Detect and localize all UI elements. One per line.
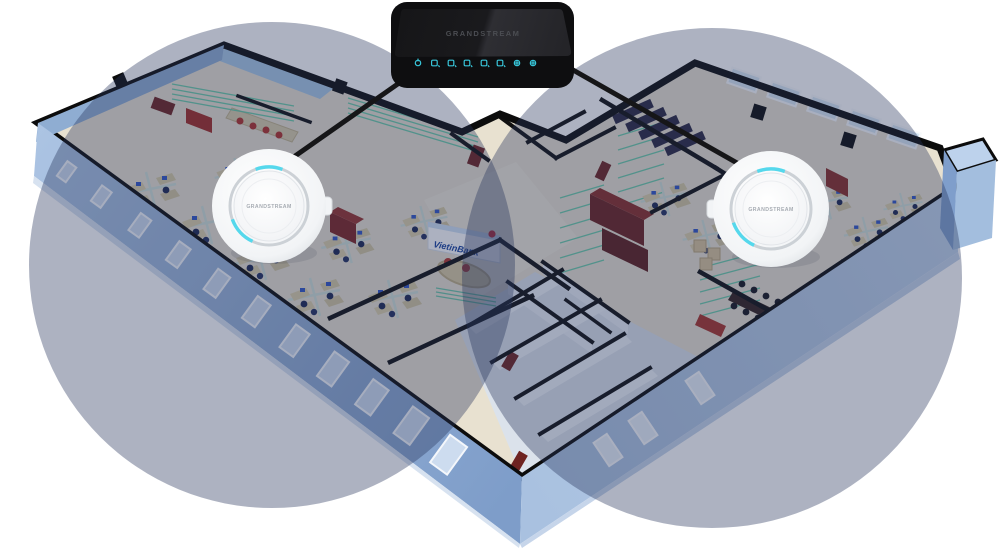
wifi-router: GRANDSTREAM (391, 2, 574, 88)
network-coverage-illustration: VietinBank (0, 0, 1000, 548)
illustration-canvas: VietinBank (0, 0, 1000, 548)
led-wan1-icon (514, 60, 519, 65)
ap-brand-label: GRANDSTREAM (246, 204, 291, 210)
coverage-area-right (462, 28, 962, 528)
coverage-area-left (29, 22, 515, 508)
led-wan2-icon (530, 60, 535, 65)
ap-brand-label: GRANDSTREAM (748, 207, 793, 213)
router-brand-label: GRANDSTREAM (446, 29, 521, 38)
